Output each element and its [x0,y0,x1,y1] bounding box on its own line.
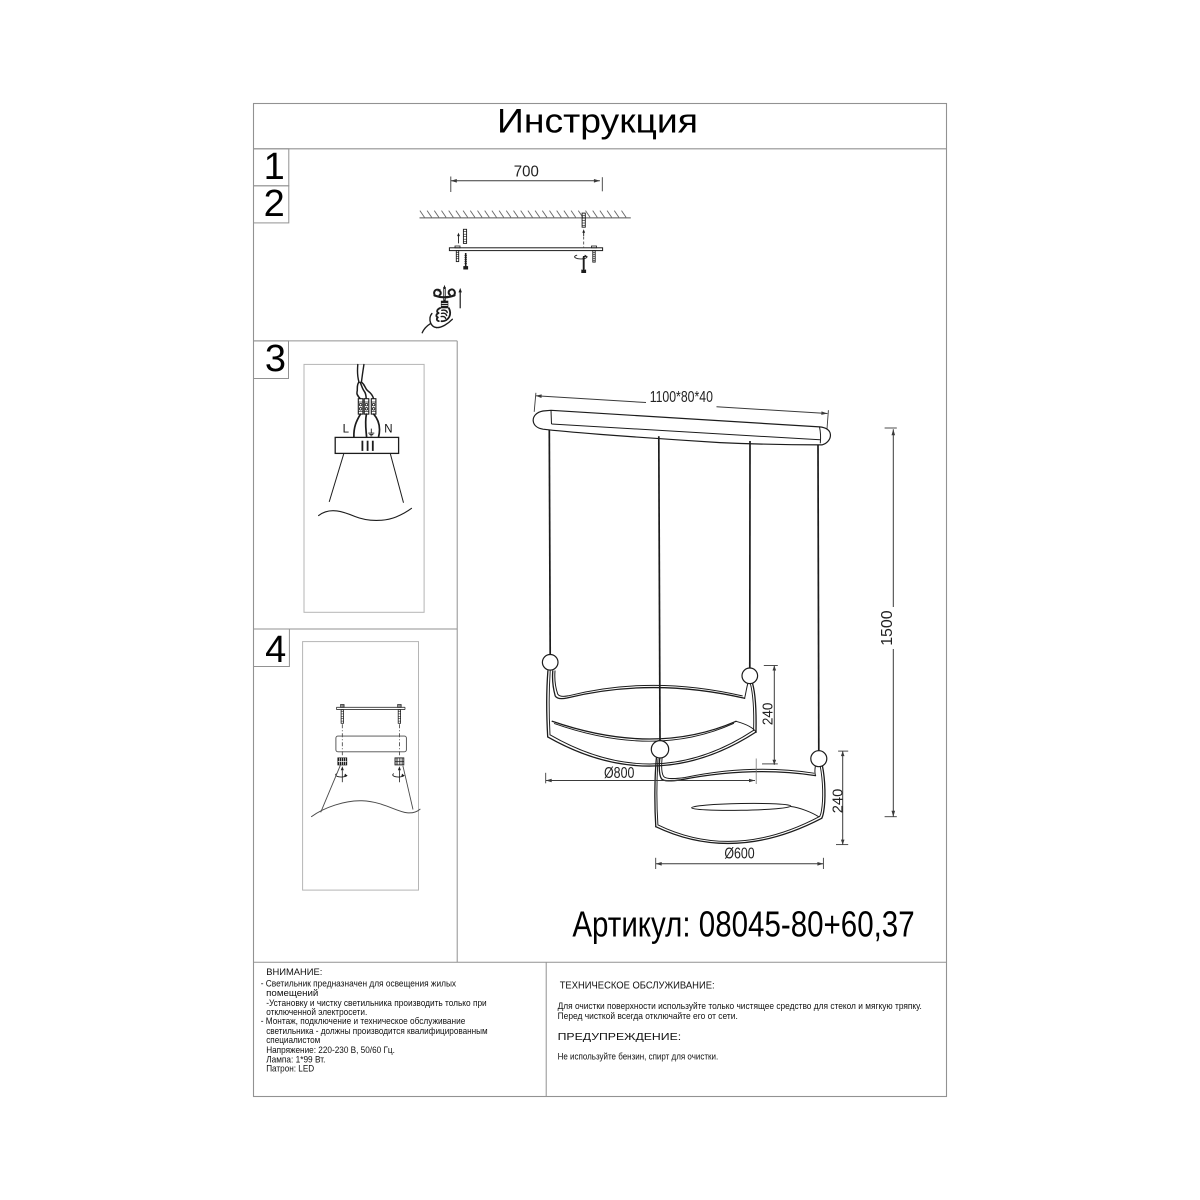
svg-text:240: 240 [759,703,776,726]
svg-text:1: 1 [264,146,285,188]
svg-text:3: 3 [265,338,286,380]
svg-text:Перед чисткой всегда отключайт: Перед чисткой всегда отключайте его от с… [558,1011,738,1021]
svg-text:Для очистки поверхности исполь: Для очистки поверхности используйте толь… [558,1001,922,1011]
svg-text:ВНИМАНИЕ:: ВНИМАНИЕ: [266,966,322,977]
svg-text:- Монтаж, подключение и технич: - Монтаж, подключение и техническое обсл… [261,1016,466,1026]
svg-text:240: 240 [829,789,846,814]
svg-text:Напряжение: 220-230 В, 50/60 Г: Напряжение: 220-230 В, 50/60 Гц. [266,1045,395,1055]
svg-text:700: 700 [514,164,539,181]
svg-text:1100*80*40: 1100*80*40 [650,389,713,406]
svg-text:Не используйте бензин, спирт д: Не используйте бензин, спирт для очистки… [558,1051,719,1061]
svg-text:L: L [343,424,350,436]
svg-text:Артикул: 08045-80+60,37: Артикул: 08045-80+60,37 [572,904,914,945]
svg-text:помещений: помещений [266,988,318,998]
svg-text:ПРЕДУПРЕЖДЕНИЕ:: ПРЕДУПРЕЖДЕНИЕ: [558,1032,682,1043]
svg-text:1500: 1500 [879,610,896,646]
svg-text:ТЕХНИЧЕСКОЕ ОБСЛУЖИВАНИЕ:: ТЕХНИЧЕСКОЕ ОБСЛУЖИВАНИЕ: [560,981,715,992]
svg-text:4: 4 [265,629,286,671]
svg-text:Ø600: Ø600 [724,845,754,862]
svg-text:Ø800: Ø800 [604,765,634,782]
svg-text:N: N [384,424,392,436]
svg-text:Инструкция: Инструкция [497,102,698,140]
svg-text:2: 2 [264,183,285,225]
svg-text:Патрон: LED: Патрон: LED [266,1064,314,1074]
svg-text:специалистом: специалистом [266,1035,320,1045]
